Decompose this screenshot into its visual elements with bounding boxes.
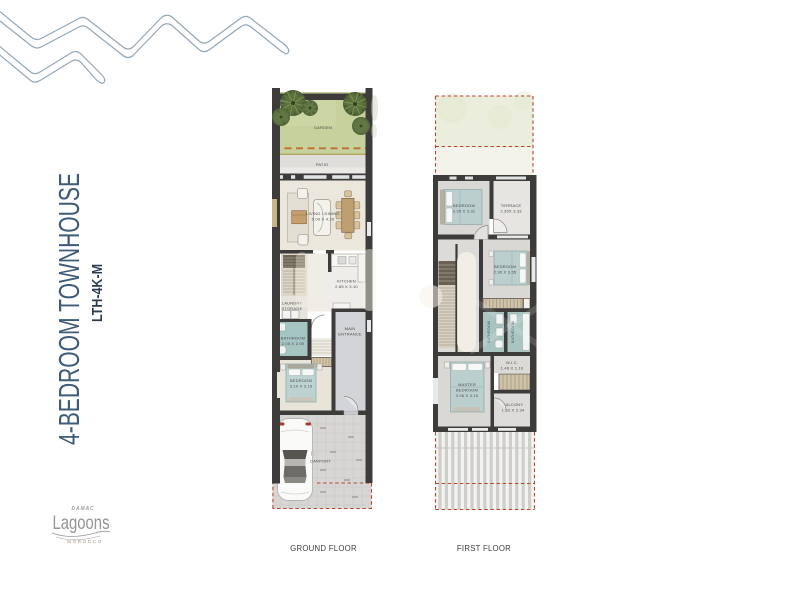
svg-text:3.39 X 3.31: 3.39 X 3.31 (453, 209, 476, 214)
svg-text:GROUND FLOOR: GROUND FLOOR (290, 544, 357, 553)
svg-text:2.85 X 3.10: 2.85 X 3.10 (335, 284, 358, 289)
svg-text:TERRACE: TERRACE (501, 203, 522, 208)
svg-text:BATHROOM: BATHROOM (281, 336, 305, 341)
svg-text:3.96 X 3.10: 3.96 X 3.10 (456, 393, 479, 398)
svg-text:2.35X 3.33: 2.35X 3.33 (500, 209, 522, 214)
svg-text:ENTRANCE: ENTRANCE (338, 332, 362, 337)
svg-text:4-BEDROOM TOWNHOUSE: 4-BEDROOM TOWNHOUSE (54, 173, 86, 445)
svg-text:3.10 X 3.15: 3.10 X 3.15 (290, 384, 313, 389)
svg-text:BALCONY: BALCONY (503, 402, 524, 407)
svg-text:LIVING / DINING: LIVING / DINING (306, 211, 339, 216)
svg-text:MASTER: MASTER (458, 382, 476, 387)
svg-text:GARDEN: GARDEN (314, 125, 332, 130)
svg-text:KITCHEN: KITCHEN (337, 279, 356, 284)
svg-text:2.30 X 3.55: 2.30 X 3.55 (494, 270, 517, 275)
svg-text:PATIO: PATIO (316, 162, 328, 167)
svg-text:MOROCCO: MOROCCO (67, 539, 103, 544)
svg-text:MAIN: MAIN (345, 326, 356, 331)
svg-text:W.I.C.: W.I.C. (506, 360, 518, 365)
svg-text:2.05 X 2.00: 2.05 X 2.00 (282, 341, 305, 346)
svg-text:LTH-4K-M: LTH-4K-M (90, 264, 106, 322)
svg-text:BEDROOM: BEDROOM (494, 264, 516, 269)
svg-text:BEDROOM: BEDROOM (290, 378, 312, 383)
svg-text:CARPORT: CARPORT (310, 459, 331, 464)
svg-text:Lagoons: Lagoons (53, 512, 110, 534)
svg-text:FIRST FLOOR: FIRST FLOOR (457, 544, 511, 553)
svg-text:5.00 X 4.20: 5.00 X 4.20 (312, 217, 335, 222)
svg-text:1.46 X 1.10: 1.46 X 1.10 (501, 366, 524, 371)
svg-text:BEDROOM: BEDROOM (456, 388, 478, 393)
svg-text:BEDROOM: BEDROOM (453, 203, 475, 208)
